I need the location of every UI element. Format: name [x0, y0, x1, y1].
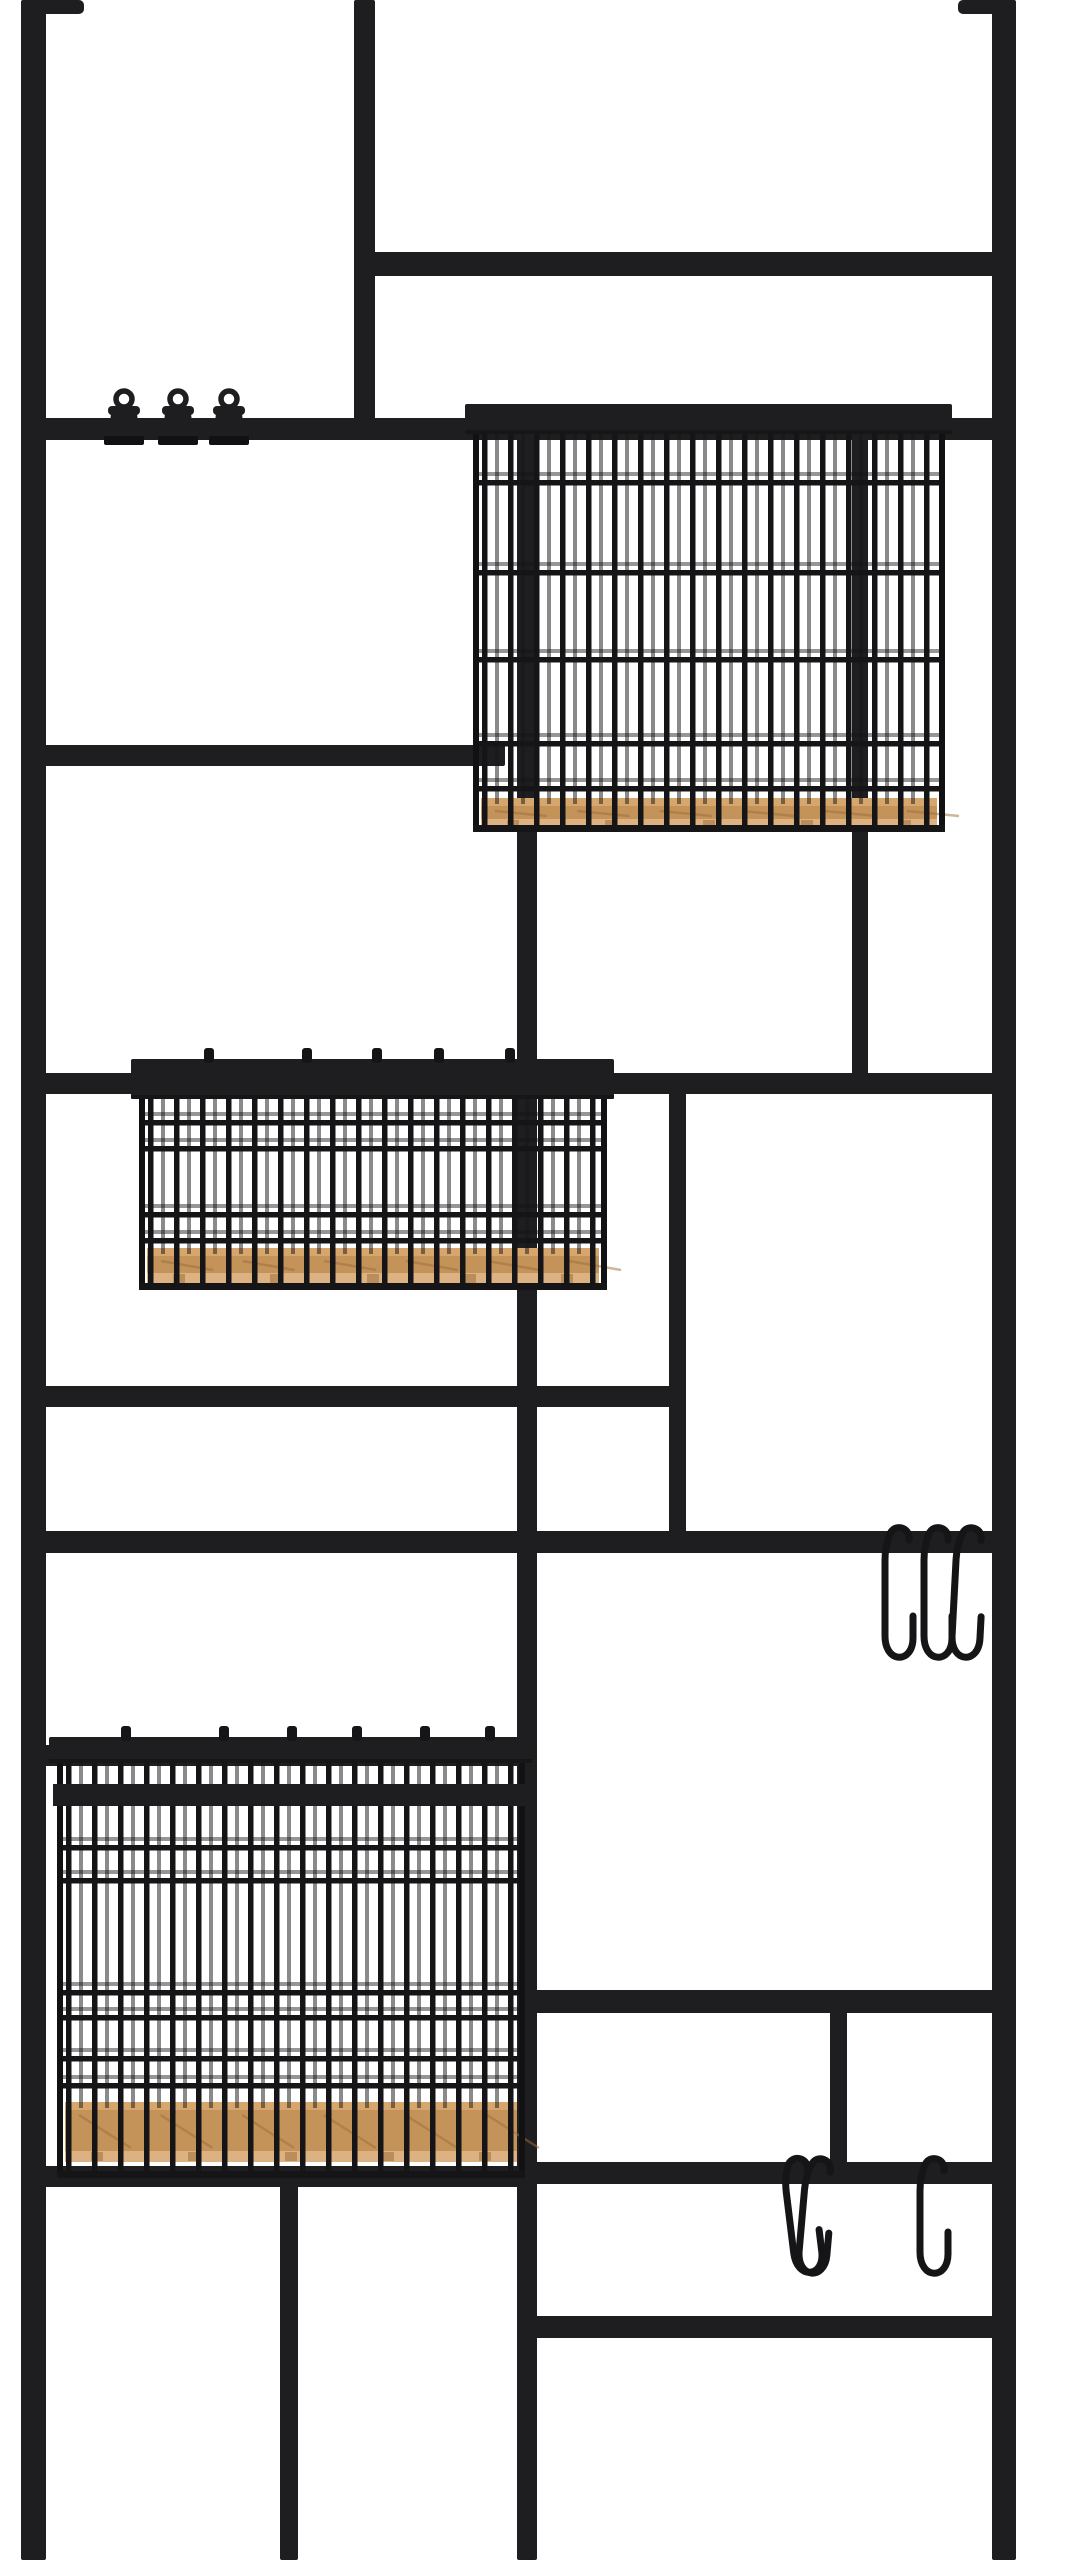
basket-top-band — [465, 404, 952, 434]
basket-back-wire-vertical — [807, 434, 811, 804]
basket-back-wire-vertical — [755, 434, 759, 804]
basket-wire-vertical — [170, 1757, 176, 2174]
basket-back-wire-horizontal — [479, 778, 939, 782]
basket-wire-vertical — [196, 1757, 202, 2174]
clip-body — [108, 414, 140, 436]
frame-bar-middle-left — [21, 1386, 686, 1407]
basket-wire-horizontal — [59, 2056, 523, 2062]
basket-wire-horizontal — [141, 1146, 605, 1152]
basket-back-wire-horizontal — [63, 1870, 519, 1874]
basket-back-wire-vertical — [833, 434, 837, 804]
frame-bar-lower-right-low — [517, 2316, 1016, 2338]
basket-wire-vertical — [118, 1757, 124, 2174]
basket-back-wire-vertical — [573, 434, 577, 804]
basket-top-band-shadow — [465, 430, 952, 434]
basket-hanger-tab — [302, 1048, 312, 1063]
basket-wire-horizontal — [59, 2083, 523, 2089]
frame-lower-right-divider — [830, 2005, 847, 2168]
basket-wire-vertical — [612, 428, 618, 828]
basket-back-wire-horizontal — [145, 1204, 601, 1208]
basket-wire-horizontal — [475, 741, 943, 747]
basket-wire-vertical — [144, 1757, 150, 2174]
basket-back-wire-vertical — [599, 434, 603, 804]
basket-wire-vertical — [222, 1757, 228, 2174]
basket-back-wire-horizontal — [479, 733, 939, 737]
basket-side-edge — [139, 1091, 145, 1290]
basket-wire-vertical — [482, 1757, 488, 2174]
basket-wire-horizontal — [475, 786, 943, 792]
basket-back-wire-vertical — [625, 434, 629, 804]
wood-slat-gap — [382, 2152, 394, 2161]
basket-hanger-tab — [420, 1726, 430, 1741]
clip-roller — [162, 406, 194, 415]
basket-wire-vertical — [352, 1757, 358, 2174]
basket-wire-vertical — [794, 428, 800, 828]
basket-wire-vertical — [300, 1757, 306, 2174]
basket-back-wire-horizontal — [145, 1112, 601, 1116]
basket-back-wire-horizontal — [479, 562, 939, 566]
basket-wire-vertical — [872, 428, 878, 828]
basket-wire-vertical — [456, 1757, 462, 2174]
basket-wire-vertical — [820, 428, 826, 828]
frame-bar-top-right — [354, 252, 1016, 276]
wood-slat-gap — [464, 1274, 476, 1283]
basket-wire-horizontal — [475, 480, 943, 486]
basket-back-wire-horizontal — [479, 649, 939, 653]
basket-back-wire-vertical — [651, 434, 655, 804]
basket-wire-horizontal — [475, 657, 943, 663]
basket-side-edge — [519, 1755, 525, 2178]
basket-back-wire-vertical — [729, 434, 733, 804]
basket-wire-vertical — [924, 428, 930, 828]
basket-wire-vertical — [664, 428, 670, 828]
product-photo — [0, 0, 1076, 2560]
basket-back-wire-vertical — [911, 434, 915, 804]
basket-back-wire-horizontal — [63, 1837, 519, 1841]
basket-wire-horizontal — [59, 1845, 523, 1851]
frame-bottom-left-divider — [280, 2170, 298, 2560]
basket-back-wire-vertical — [781, 434, 785, 804]
frame-top-divider — [354, 0, 375, 440]
basket-hanger-tab — [352, 1726, 362, 1741]
basket-wire-horizontal — [59, 1878, 523, 1884]
basket-bottom-rim — [139, 1283, 607, 1290]
frame-mid-divider — [669, 1073, 686, 1553]
basket-back-wire-vertical — [521, 434, 525, 804]
basket-side-edge — [473, 426, 479, 832]
basket-back-wire-vertical — [703, 434, 707, 804]
basket-wire-vertical — [768, 428, 774, 828]
basket-back-wire-vertical — [859, 434, 863, 804]
basket-hanger-tab — [121, 1726, 131, 1741]
basket-wire-vertical — [742, 428, 748, 828]
basket-back-wire-horizontal — [63, 2048, 519, 2052]
basket-back-wire-horizontal — [145, 1230, 601, 1234]
basket-hanger-tab — [204, 1048, 214, 1063]
basket-top-band-shadow — [49, 1759, 532, 1763]
basket-wire-vertical — [716, 428, 722, 828]
basket-wire-horizontal — [141, 1238, 605, 1244]
basket-back-wire-horizontal — [63, 2075, 519, 2079]
clip-jaw — [209, 436, 249, 445]
wood-base-front — [147, 1256, 599, 1274]
basket-wire-vertical — [534, 428, 540, 828]
basket-back-wire-vertical — [495, 434, 499, 804]
wood-base-front — [481, 806, 937, 820]
clip-roller — [213, 406, 245, 415]
basket-hanger-tab — [287, 1726, 297, 1741]
wood-slat-gap — [285, 2152, 297, 2161]
clip-body — [162, 414, 194, 436]
basket-wire-horizontal — [59, 2015, 523, 2021]
basket-back-wire-horizontal — [63, 1982, 519, 1986]
frame-bar-long — [21, 1531, 1016, 1553]
basket-wire-vertical — [326, 1757, 332, 2174]
basket-wire-vertical — [846, 428, 852, 828]
basket-wire-vertical — [274, 1757, 280, 2174]
basket-wire-vertical — [690, 428, 696, 828]
basket-wire-vertical — [508, 1757, 514, 2174]
basket-rim-band-lower — [53, 1784, 529, 1806]
basket-hanger-tab — [434, 1048, 444, 1063]
clip-body — [213, 414, 245, 436]
basket-wire-horizontal — [141, 1212, 605, 1218]
basket-wire-horizontal — [59, 1990, 523, 1996]
wood-slat-gap — [367, 1274, 379, 1283]
basket-top-band-shadow — [131, 1095, 614, 1099]
basket-wire-vertical — [430, 1757, 436, 2174]
basket-wire-vertical — [586, 428, 592, 828]
clip-jaw — [158, 436, 198, 445]
basket-wire-vertical — [92, 1757, 98, 2174]
wall-grid-organizer-image — [0, 0, 1076, 2560]
basket-hanger-tab — [505, 1048, 515, 1063]
basket-side-edge — [939, 426, 945, 832]
clip-roller — [108, 406, 140, 415]
basket-top-band — [131, 1059, 614, 1099]
basket-back-wire-horizontal — [63, 2007, 519, 2011]
basket-wire-horizontal — [475, 570, 943, 576]
basket-back-wire-vertical — [547, 434, 551, 804]
basket-hanger-tab — [219, 1726, 229, 1741]
frame-bar-upper-left — [21, 745, 505, 766]
basket-bottom-rim — [57, 2171, 525, 2178]
basket-wire-vertical — [560, 428, 566, 828]
basket-wire-vertical — [508, 428, 514, 828]
clip-jaw — [104, 436, 144, 445]
basket-side-edge — [57, 1755, 63, 2178]
basket-back-wire-vertical — [677, 434, 681, 804]
basket-wire-vertical — [482, 428, 488, 828]
basket-wire-vertical — [378, 1757, 384, 2174]
basket-back-wire-vertical — [885, 434, 889, 804]
basket-wire-vertical — [898, 428, 904, 828]
basket-back-wire-horizontal — [479, 472, 939, 476]
basket-wire-vertical — [638, 428, 644, 828]
basket-wire-vertical — [66, 1757, 72, 2174]
basket-back-wire-horizontal — [145, 1138, 601, 1142]
basket-hanger-tab — [485, 1726, 495, 1741]
basket-wire-vertical — [404, 1757, 410, 2174]
basket-wire-vertical — [248, 1757, 254, 2174]
basket-bottom-rim — [473, 825, 945, 832]
frame-bar-lower-right-top — [517, 1990, 1016, 2013]
basket-hanger-tab — [372, 1048, 382, 1063]
basket-wire-horizontal — [141, 1120, 605, 1126]
basket-side-edge — [601, 1091, 607, 1290]
